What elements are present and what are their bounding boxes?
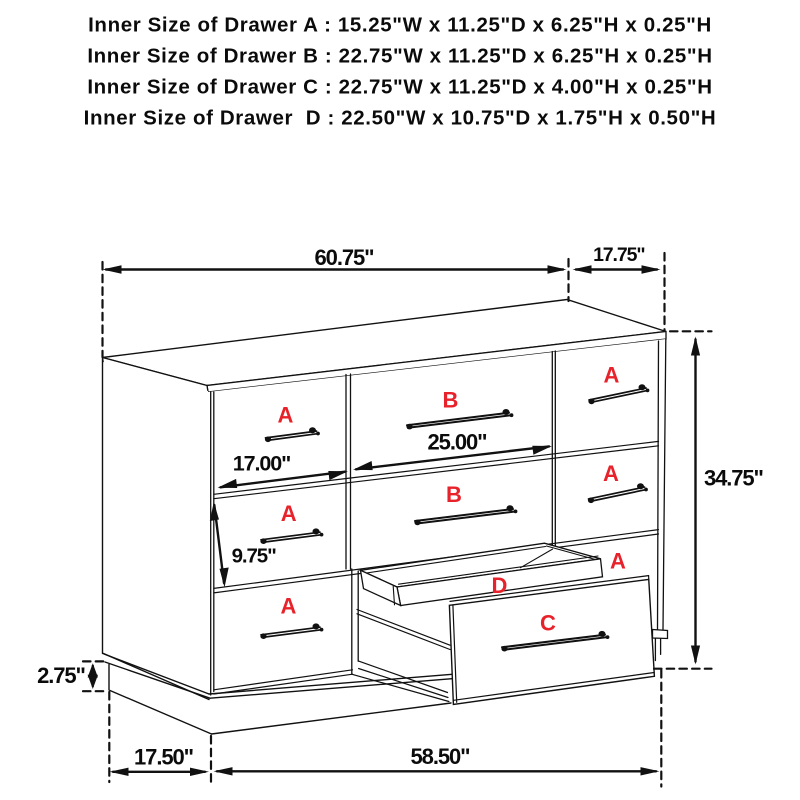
svg-text:A: A	[280, 594, 296, 619]
svg-text:17.00": 17.00"	[233, 452, 290, 476]
svg-text:A: A	[603, 461, 619, 486]
svg-text:17.75": 17.75"	[593, 244, 644, 266]
svg-text:Inner Size of Drawer B : 22.75: Inner Size of Drawer B : 22.75"W x 11.25…	[87, 45, 712, 68]
svg-text:B: B	[443, 388, 459, 413]
svg-text:34.75": 34.75"	[704, 466, 763, 491]
svg-text:D: D	[492, 573, 508, 598]
svg-text:A: A	[604, 363, 620, 388]
svg-text:60.75": 60.75"	[315, 245, 374, 270]
svg-text:25.00": 25.00"	[428, 430, 487, 455]
svg-text:C: C	[540, 610, 556, 635]
svg-text:Inner Size of Drawer A : 15.25: Inner Size of Drawer A : 15.25"W x 11.25…	[88, 14, 712, 37]
svg-text:A: A	[610, 549, 626, 574]
svg-text:2.75": 2.75"	[37, 663, 85, 688]
svg-text:17.50": 17.50"	[134, 745, 193, 770]
svg-text:A: A	[278, 403, 294, 428]
svg-text:58.50": 58.50"	[411, 744, 470, 769]
svg-text:B: B	[446, 482, 462, 507]
svg-text:Inner Size of Drawer D : 22.5: Inner Size of Drawer D : 22.50"W x 10.75…	[84, 107, 717, 130]
svg-text:A: A	[281, 501, 297, 526]
svg-text:9.75": 9.75"	[232, 545, 276, 568]
svg-text:Inner Size of Drawer C : 22.75: Inner Size of Drawer C : 22.75"W x 11.25…	[87, 76, 712, 99]
